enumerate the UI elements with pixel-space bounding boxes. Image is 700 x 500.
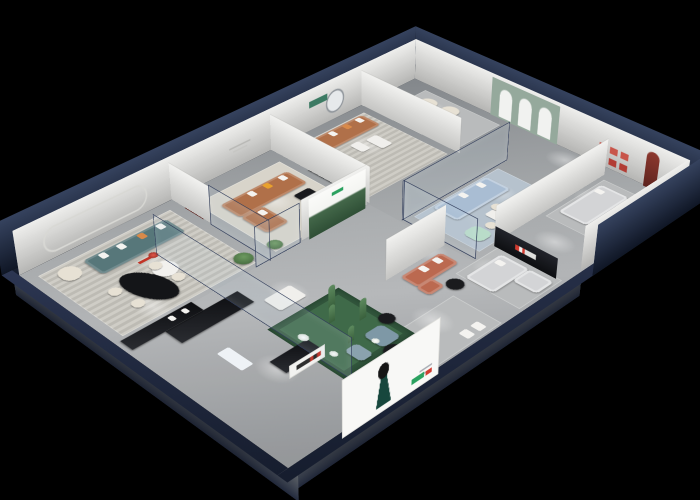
- isometric-stage: [0, 0, 700, 500]
- scene-3d: [19, 79, 684, 469]
- showroom-floor: [19, 79, 684, 469]
- showroom-render: [0, 0, 700, 500]
- garden-cactus: [359, 296, 366, 321]
